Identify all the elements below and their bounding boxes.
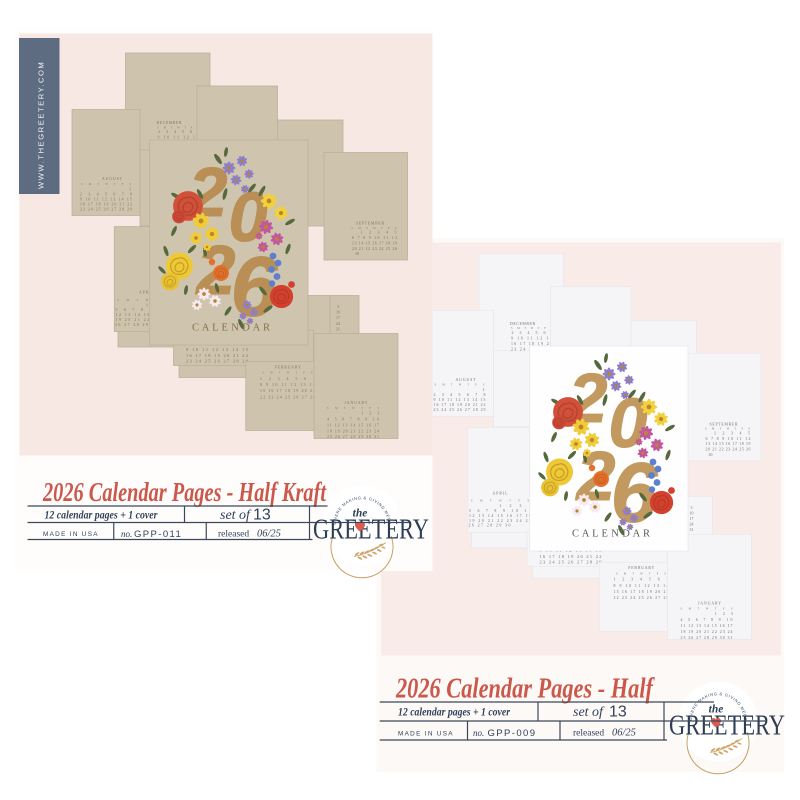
- svg-text:13: 13: [253, 507, 271, 524]
- svg-text:MADE IN USA: MADE IN USA: [43, 531, 99, 538]
- svg-text:GPP-011: GPP-011: [134, 529, 182, 540]
- svg-text:WWW.THEGREETERY.COM: WWW.THEGREETERY.COM: [37, 61, 46, 189]
- svg-text:set of: set of: [573, 705, 605, 720]
- svg-text:GPP-009: GPP-009: [488, 728, 537, 739]
- svg-text:released: released: [218, 530, 249, 540]
- svg-text:2026 Calendar Pages - Half: 2026 Calendar Pages - Half: [395, 674, 655, 705]
- svg-text:no.: no.: [473, 728, 484, 738]
- svg-text:12 calendar pages + 1 cover: 12 calendar pages + 1 cover: [398, 705, 510, 719]
- svg-text:no.: no.: [121, 529, 132, 539]
- svg-text:MADE IN USA: MADE IN USA: [398, 731, 454, 738]
- svg-text:12 calendar pages + 1 cover: 12 calendar pages + 1 cover: [45, 508, 158, 522]
- svg-text:06/25: 06/25: [257, 529, 281, 540]
- svg-text:13: 13: [609, 704, 627, 721]
- svg-text:06/25: 06/25: [612, 728, 636, 739]
- svg-text:set of: set of: [220, 508, 252, 523]
- svg-text:2026 Calendar Pages - Half Kra: 2026 Calendar Pages - Half Kraft: [42, 476, 327, 507]
- svg-text:released: released: [573, 729, 604, 739]
